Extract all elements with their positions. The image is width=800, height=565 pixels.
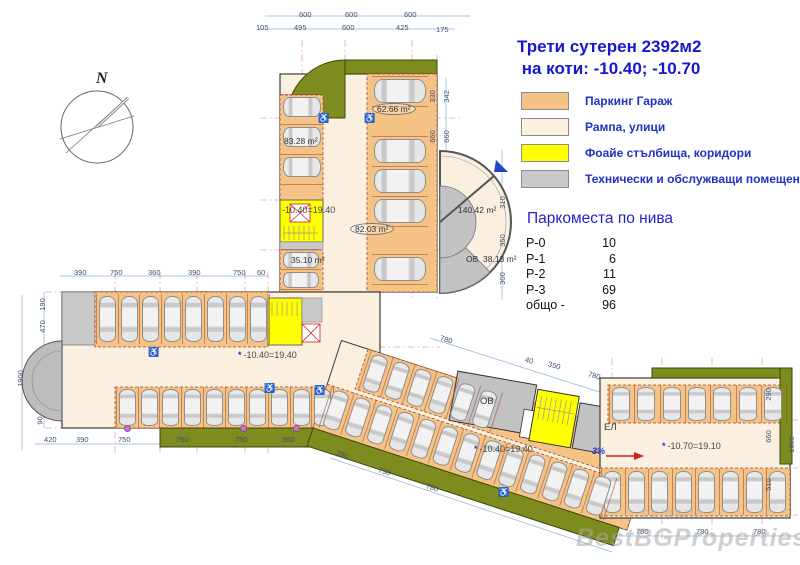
title-line1: Трети сутерен 2392м2 [517, 37, 701, 56]
stall-divider [138, 387, 139, 428]
level-name: общо - [526, 298, 582, 314]
dimension-label: 660 [442, 130, 451, 143]
dimension-label: 90 [36, 416, 45, 424]
stall-divider [181, 387, 182, 428]
parking-table-row: Р-010 [526, 236, 616, 252]
car-icon [185, 296, 202, 342]
ramp-direction-arrow [494, 160, 508, 172]
level-name: Р-0 [526, 236, 582, 252]
car-icon [99, 296, 116, 342]
dimension-label: 510 [764, 478, 773, 491]
space-count: 10 [582, 236, 616, 252]
compass-north-label: N [96, 70, 108, 88]
car-icon [207, 296, 224, 342]
stall-divider [790, 469, 791, 515]
car-icon [739, 387, 757, 421]
car-icon [293, 389, 310, 426]
dimension-label: 600 [404, 10, 417, 19]
car-icon [250, 296, 267, 342]
stall-divider [766, 469, 767, 515]
area-label: ОВ 38.13 m² [466, 254, 517, 264]
area-label: 62.66 m² [372, 103, 416, 115]
area-value: 38.13 m² [483, 254, 517, 264]
stall-divider [247, 294, 248, 344]
level-label: -10.40=19.40 [282, 205, 335, 215]
stall-divider [139, 294, 140, 344]
parking-table-row: общо -96 [526, 298, 616, 314]
dimension-label: 390 [188, 268, 201, 277]
legend-item: Технически и обслужващи помещения [521, 166, 800, 192]
ramp-west [22, 341, 62, 421]
room-label-el: ЕЛ [604, 422, 617, 433]
technical-room [62, 292, 95, 345]
floor-plan-page: ♿♿♿♿♿♿ N Трети сутерен 2392м2 на коти: -… [0, 0, 800, 565]
dimension-label: 330 [428, 90, 437, 103]
stair-core-south [529, 389, 579, 448]
dimension-label: 750 [118, 435, 131, 444]
stall-divider [281, 94, 323, 95]
stall-divider [625, 469, 626, 515]
car-icon [228, 389, 245, 426]
level-label: *-10.40=19.40 [238, 350, 297, 360]
survey-mark-icon: * [238, 350, 242, 360]
stall-divider [96, 294, 97, 344]
dimension-label: 1600 [787, 436, 796, 453]
car-icon [184, 389, 201, 426]
dimension-label: 1900 [16, 370, 25, 387]
dimension-label: 105 [256, 23, 269, 32]
dimension-label: 360 [282, 435, 295, 444]
watermark-subtext: bulgaria [642, 505, 704, 520]
stall-divider [159, 387, 160, 428]
car-icon [637, 387, 655, 421]
car-icon [206, 389, 223, 426]
dimension-label: 390 [76, 435, 89, 444]
space-count: 96 [582, 298, 616, 314]
dimension-label: 175 [436, 25, 449, 34]
dimension-label: 750 [176, 435, 189, 444]
dimension-label: 360 [148, 268, 161, 277]
stall-divider [372, 136, 428, 137]
dimension-label: 600 [299, 10, 312, 19]
stall-divider [290, 387, 291, 428]
dimension-label: 600 [342, 23, 355, 32]
legend-label: Фоайе стълбища, коридори [585, 146, 751, 160]
dimension-label: 300 [498, 272, 507, 285]
car-icon [374, 79, 426, 103]
stall-divider [660, 385, 661, 423]
legend-label: Паркинг Гараж [585, 94, 672, 108]
dimension-label: 750 [233, 268, 246, 277]
stall-divider [372, 166, 428, 167]
stall-divider [204, 294, 205, 344]
accessible-parking-icon: ♿ [364, 114, 375, 123]
stall-divider [372, 196, 428, 197]
parking-table-row: Р-211 [526, 267, 616, 283]
accessible-parking-icon: ♿ [498, 488, 509, 497]
level-name: Р-2 [526, 267, 582, 283]
stall-divider [225, 387, 226, 428]
stall-divider [609, 385, 610, 423]
stall-divider [203, 387, 204, 428]
parking-table-row: Р-16 [526, 252, 616, 268]
stall-divider [311, 387, 312, 428]
car-icon [283, 97, 321, 117]
room-label: ОВ [466, 254, 478, 264]
dimension-label: 342 [442, 90, 451, 103]
stall-divider [118, 294, 119, 344]
dimension-label: 425 [396, 23, 409, 32]
accessible-parking-icon: ♿ [314, 386, 325, 395]
stall-divider [281, 269, 321, 270]
car-icon [374, 199, 426, 223]
dimension-label: 750 [235, 435, 248, 444]
page-title: Трети сутерен 2392м2 на коти: -10.40; -1… [517, 36, 701, 80]
dimension-label: 390 [74, 268, 87, 277]
car-icon [119, 389, 136, 426]
stall-divider [182, 294, 183, 344]
car-icon [164, 296, 181, 342]
legend-item: Рампа, улици [521, 114, 800, 140]
car-icon [229, 296, 246, 342]
stall-divider [268, 387, 269, 428]
stall-divider [281, 289, 321, 290]
legend-swatch [521, 92, 569, 110]
car-icon [142, 296, 159, 342]
car-icon [722, 471, 739, 513]
stall-divider [634, 385, 635, 423]
column-marker [124, 425, 131, 432]
car-icon [713, 387, 731, 421]
legend-swatch [521, 144, 569, 162]
stall-divider [719, 469, 720, 515]
dimension-label: 750 [110, 268, 123, 277]
level-label: *-10.40=19.40 [474, 444, 533, 454]
column-marker [240, 425, 247, 432]
stall-divider [743, 469, 744, 515]
car-icon [283, 157, 321, 177]
legend-swatch [521, 118, 569, 136]
accessible-parking-icon: ♿ [318, 114, 329, 123]
compass-rose [60, 91, 134, 163]
car-icon [374, 257, 426, 281]
accessible-parking-icon: ♿ [148, 348, 159, 357]
dimension-label: 310 [498, 196, 507, 209]
car-icon [121, 296, 138, 342]
space-count: 11 [582, 267, 616, 283]
green-strip [652, 368, 788, 378]
space-count: 69 [582, 283, 616, 299]
area-label: 82.03 m² [350, 223, 394, 235]
accessible-parking-icon: ♿ [264, 384, 275, 393]
car-icon [162, 389, 179, 426]
parking-table-row: Р-369 [526, 283, 616, 299]
car-icon [612, 387, 630, 421]
stall-divider [226, 294, 227, 344]
car-icon [141, 389, 158, 426]
area-label: 83.28 m² [284, 136, 318, 146]
stall-divider [710, 385, 711, 423]
dimension-label: 420 [44, 435, 57, 444]
dimension-label: 660 [428, 130, 437, 143]
dimension-label: 190 [38, 298, 47, 311]
stall-divider [161, 294, 162, 344]
legend-label: Технически и обслужващи помещения [585, 172, 800, 186]
car-icon [374, 169, 426, 193]
car-icon [663, 387, 681, 421]
level-name: Р-3 [526, 283, 582, 299]
level-name: Р-1 [526, 252, 582, 268]
stall-divider [372, 76, 428, 77]
area-label: 35.10 m² [291, 255, 325, 265]
watermark: BestBGProperties [576, 524, 800, 553]
level-value: -10.40=19.40 [480, 444, 533, 454]
stall-divider [281, 249, 321, 250]
dimension-label: 290 [764, 388, 773, 401]
stall-divider [761, 385, 762, 423]
car-icon [271, 389, 288, 426]
car-icon [374, 139, 426, 163]
area-label: 140.42 m² [458, 205, 496, 215]
stall-divider [281, 184, 323, 185]
stall-divider [269, 294, 270, 344]
space-count: 6 [582, 252, 616, 268]
parking-table: Р-010Р-16Р-211Р-369общо -96 [526, 236, 616, 314]
stall-divider [372, 284, 428, 285]
car-icon [746, 471, 763, 513]
stall-divider [372, 254, 428, 255]
stall-divider [281, 154, 323, 155]
stall-divider [736, 385, 737, 423]
survey-mark-icon: * [474, 444, 478, 454]
legend-item: Фоайе стълбища, коридори [521, 140, 800, 166]
level-value: -10.70=19.10 [668, 441, 721, 451]
level-label: *-10.70=19.10 [662, 441, 721, 451]
dimension-label: 600 [345, 10, 358, 19]
survey-mark-icon: * [662, 441, 666, 451]
room-label-ov: ОВ [480, 396, 494, 407]
stall-divider [246, 387, 247, 428]
title-line2: на коти: -10.40; -10.70 [517, 59, 700, 78]
legend-label: Рампа, улици [585, 120, 665, 134]
level-value: -10.40=19.40 [244, 350, 297, 360]
legend-item: Паркинг Гараж [521, 88, 800, 114]
legend-swatch [521, 170, 569, 188]
legend: Паркинг ГаражРампа, улициФоайе стълбища,… [521, 88, 800, 192]
slope-label: 3% [592, 446, 605, 456]
car-icon [283, 272, 319, 288]
dimension-label: 495 [294, 23, 307, 32]
car-icon [688, 387, 706, 421]
stall-divider [116, 387, 117, 428]
parking-table-title: Паркоместа по нива [527, 210, 673, 228]
stall-divider [685, 385, 686, 423]
column-marker [293, 425, 300, 432]
car-icon [249, 389, 266, 426]
stall-divider [786, 385, 787, 423]
dimension-label: 660 [764, 430, 773, 443]
dimension-label: 350 [498, 234, 507, 247]
dimension-label: 60 [257, 268, 265, 277]
dimension-label: 470 [38, 320, 47, 333]
stall-divider [281, 124, 323, 125]
